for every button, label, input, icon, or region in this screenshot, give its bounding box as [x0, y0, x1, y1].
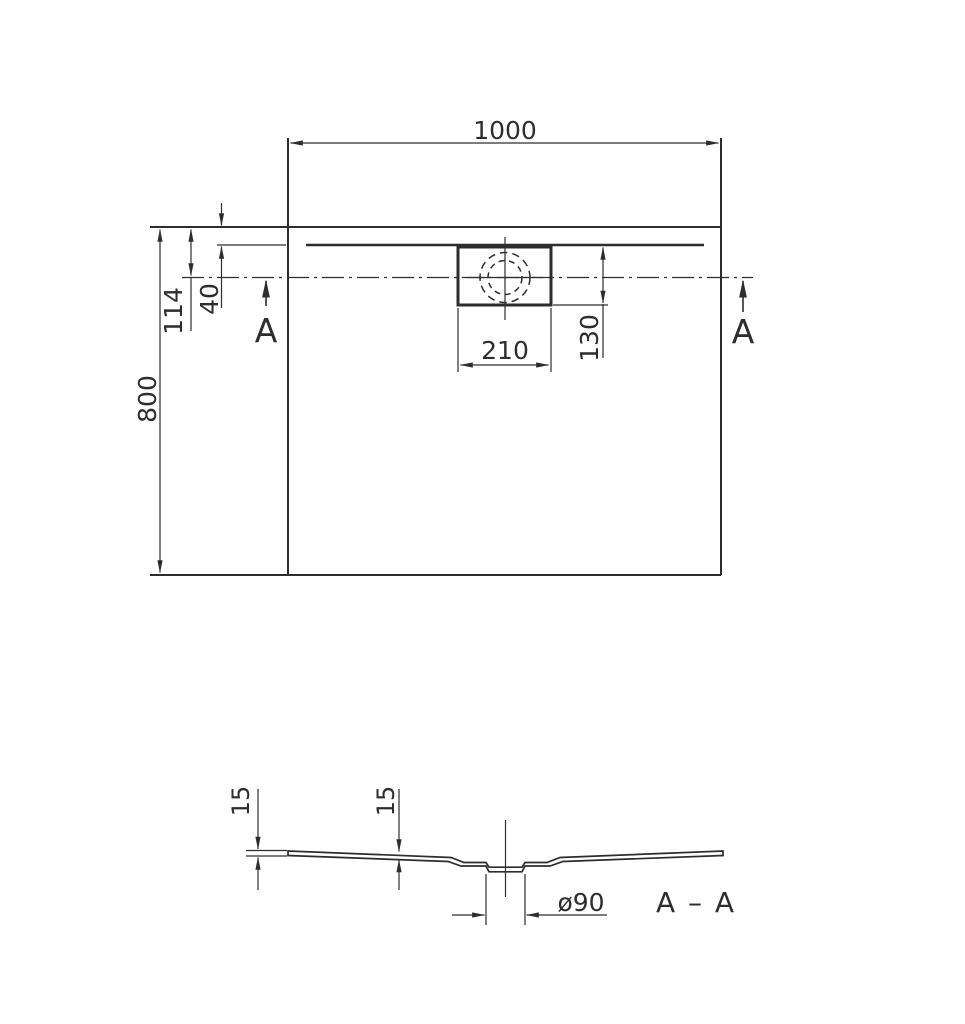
technical-drawing-canvas: 1000 800 114 40 210 130 A A: [0, 0, 965, 1024]
label-drain-diameter-90: ø90: [557, 888, 604, 917]
label-drain-depth-130: 130: [575, 314, 604, 362]
label-section-marker-left: A: [255, 311, 278, 350]
plan-view: [150, 138, 753, 575]
section-title: A – A: [656, 886, 736, 919]
label-rim-offset-40: 40: [195, 283, 224, 315]
tray-outline: [150, 138, 721, 575]
label-drain-offset-114: 114: [159, 287, 188, 335]
plan-view-labels: 1000 800 114 40 210 130 A A: [133, 116, 755, 423]
section-view: [246, 789, 723, 925]
label-length-1000: 1000: [473, 116, 537, 145]
label-section-marker-right: A: [732, 312, 755, 351]
label-drain-width-210: 210: [481, 336, 529, 365]
label-edge-thickness-15: 15: [227, 786, 255, 817]
label-width-800: 800: [133, 375, 162, 423]
edge-extension-lines: [246, 851, 287, 857]
label-slope-thickness-15: 15: [372, 786, 400, 817]
drawing-svg: 1000 800 114 40 210 130 A A: [0, 0, 965, 1024]
